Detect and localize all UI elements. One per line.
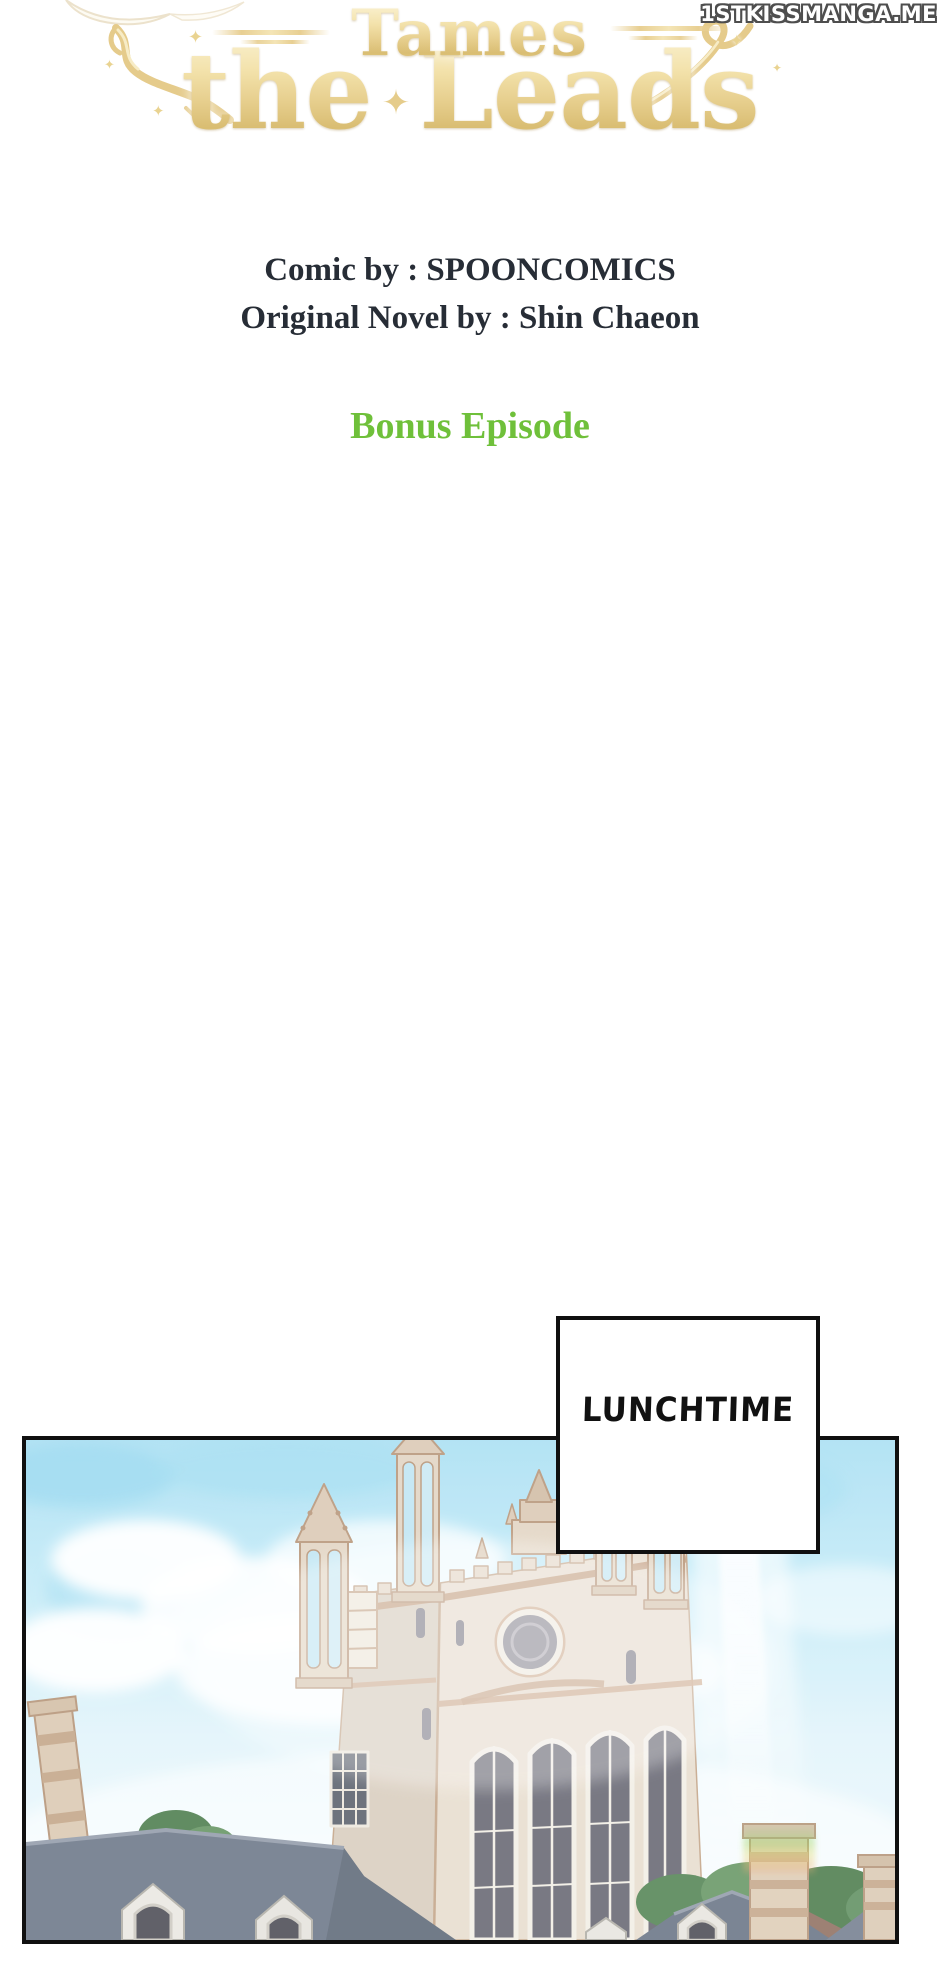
- site-watermark: 1STKISSMANGA.ME: [700, 2, 937, 26]
- credit-novel-by: Original Novel by : Shin Chaeon: [0, 294, 940, 342]
- credit-comic-by: Comic by : SPOONCOMICS: [0, 246, 940, 294]
- sparkle-icon: ✦: [382, 86, 410, 120]
- webtoon-page: ✦ ✦ ✦ ✦ ✦ Tames the✦Leads 1STKISSMANGA.M…: [0, 0, 940, 1972]
- speech-text: LUNCHTIME: [581, 1391, 794, 1430]
- credits-block: Comic by : SPOONCOMICS Original Novel by…: [0, 246, 940, 342]
- speech-bubble: LUNCHTIME: [556, 1316, 820, 1554]
- episode-label: Bonus Episode: [0, 404, 940, 448]
- title-block: ✦ ✦ ✦ ✦ ✦ Tames the✦Leads 1STKISSMANGA.M…: [0, 0, 940, 160]
